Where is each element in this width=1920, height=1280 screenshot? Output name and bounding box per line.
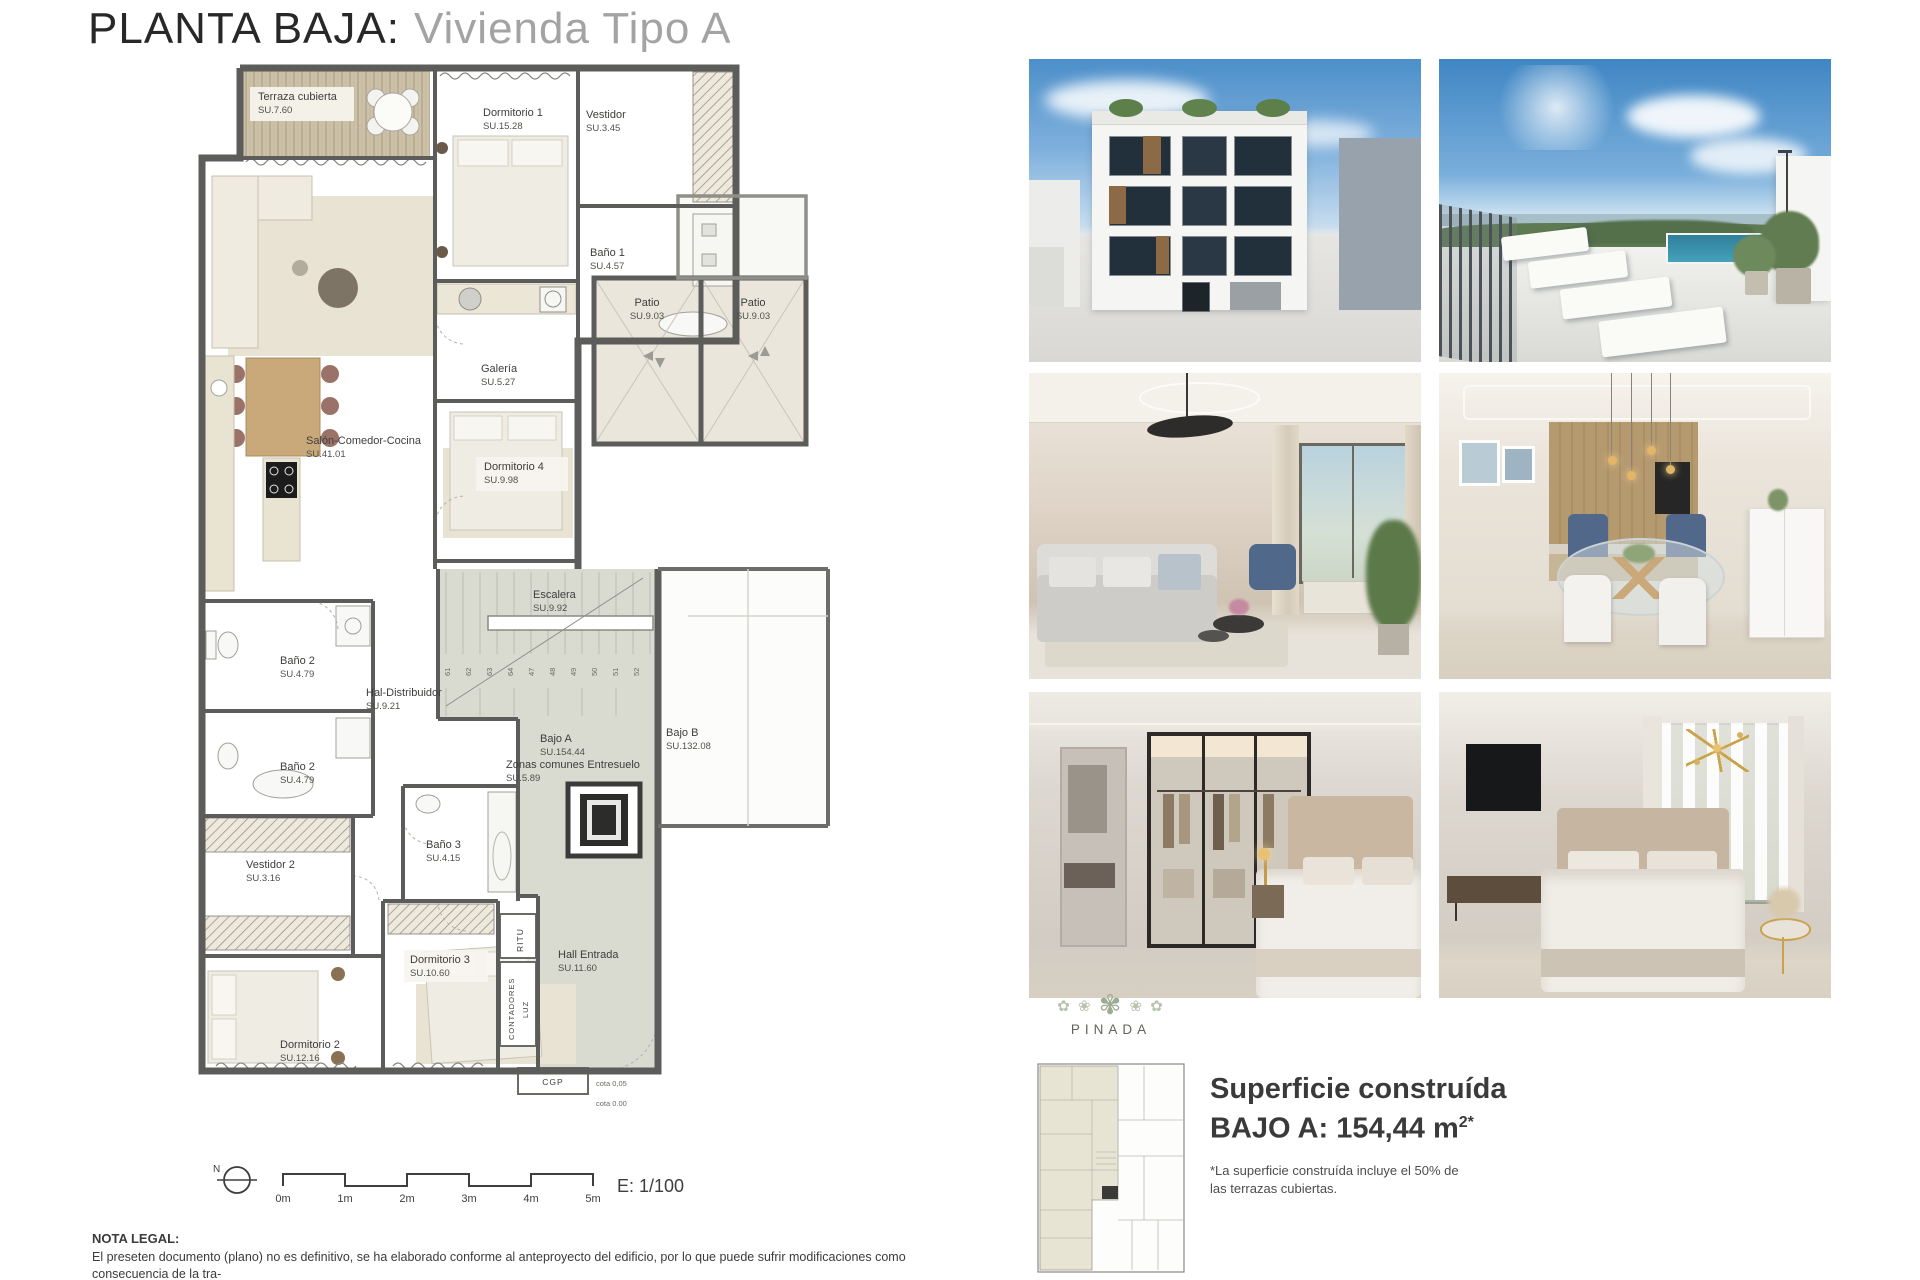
key-plan xyxy=(1032,1060,1190,1276)
ornament-center-icon: ✾ xyxy=(1099,990,1124,1020)
svg-text:SU.12.16: SU.12.16 xyxy=(280,1053,320,1064)
table-lamp-gold xyxy=(1264,857,1267,885)
wall-art xyxy=(1459,440,1500,486)
pendant-cord xyxy=(1651,373,1652,446)
label-salon: Salón-Comedor-CocinaSU.41.01 xyxy=(306,435,422,460)
glass-mullion xyxy=(1202,736,1205,944)
photo-bedroom xyxy=(1439,692,1831,998)
wall-art xyxy=(1502,446,1535,483)
svg-text:SU.15.28: SU.15.28 xyxy=(483,121,523,132)
label-galeria: GaleríaSU.5.27 xyxy=(481,363,518,388)
svg-text:Hal-Distribuidor: Hal-Distribuidor xyxy=(366,687,442,699)
svg-text:Hall Entrada: Hall Entrada xyxy=(558,949,619,961)
bed-throw xyxy=(1541,949,1745,977)
svg-text:Patio: Patio xyxy=(740,297,765,309)
stair-number: 61 xyxy=(443,668,452,676)
hanging-garment xyxy=(1213,794,1224,850)
sofa-cushion xyxy=(1049,557,1096,588)
svg-text:Bajo A: Bajo A xyxy=(540,733,572,745)
dining-chair-white xyxy=(1659,578,1706,645)
vanity-counter xyxy=(1064,863,1115,887)
side-table-leg xyxy=(1782,937,1784,974)
bajo-b-fill xyxy=(658,569,828,826)
window-wood-slat xyxy=(1109,186,1126,224)
roof-plant xyxy=(1182,99,1216,117)
roof-plant xyxy=(1109,99,1143,117)
svg-text:SU.5.89: SU.5.89 xyxy=(506,773,540,784)
ornament-left-icon: ✿ ❀ xyxy=(1057,998,1092,1015)
label-hal-distribuidor: Hal-DistribuidorSU.9.21 xyxy=(366,687,442,712)
planter-pot xyxy=(1745,271,1769,295)
svg-text:Salón-Comedor-Cocina: Salón-Comedor-Cocina xyxy=(306,435,422,447)
svg-text:Baño 1: Baño 1 xyxy=(590,247,625,259)
hanging-garment xyxy=(1229,794,1240,842)
dining-chair-white xyxy=(1564,575,1611,642)
pendant-bulb xyxy=(1627,471,1636,480)
svg-text:SU.3.45: SU.3.45 xyxy=(586,123,620,134)
svg-text:SU.4.15: SU.4.15 xyxy=(426,853,460,864)
svg-text:SU.5.27: SU.5.27 xyxy=(481,377,515,388)
pendant-bulb xyxy=(1608,456,1617,465)
hanging-garment xyxy=(1179,794,1190,844)
summary-line2: BAJO A: 154,44 m2* xyxy=(1210,1106,1630,1146)
photo-rooftop-solarium xyxy=(1439,59,1831,362)
bed-pillow xyxy=(1303,857,1354,885)
tv-screen xyxy=(1466,744,1540,811)
bed-pillow xyxy=(1362,857,1413,885)
svg-text:Zonas comunes Entresuelo: Zonas comunes Entresuelo xyxy=(506,759,640,771)
cloud xyxy=(1627,95,1760,137)
scale-bar: N 0m 1m 2m 3m 4m 5m E: 1/100 xyxy=(205,1146,725,1210)
svg-text:SU.9.92: SU.9.92 xyxy=(533,603,567,614)
label-bano2-upper: Baño 2SU.4.79 xyxy=(280,655,315,680)
window xyxy=(1234,236,1292,276)
stair-number: 63 xyxy=(485,668,494,676)
stair-number: 51 xyxy=(611,668,620,676)
sideboard-seam xyxy=(1784,508,1785,637)
brochure-page: PLANTA BAJA:Vivienda Tipo A xyxy=(0,0,1920,1280)
svg-text:SU.4.79: SU.4.79 xyxy=(280,775,314,786)
shelf-box xyxy=(1163,869,1194,898)
sideboard-white xyxy=(1749,508,1825,639)
vase-sprig xyxy=(1768,489,1788,510)
svg-text:SU.9.03: SU.9.03 xyxy=(630,311,664,322)
title-sub: Vivienda Tipo A xyxy=(414,4,732,53)
building-facade xyxy=(1092,111,1308,311)
summary-footnote: *La superficie construída incluye el 50%… xyxy=(1210,1162,1630,1198)
label-ritu: RITU xyxy=(515,928,525,952)
hanging-garment xyxy=(1163,794,1174,848)
stair-number: 62 xyxy=(464,668,473,676)
label-terraza: Terraza cubiertaSU.7.60 xyxy=(250,87,354,121)
scale-ratio: E: 1/100 xyxy=(617,1176,684,1196)
svg-text:Vestidor: Vestidor xyxy=(586,109,626,121)
stair-number: 49 xyxy=(569,668,578,676)
svg-text:SU.9.98: SU.9.98 xyxy=(484,475,518,486)
sofa-cushion xyxy=(1103,557,1150,588)
window xyxy=(1234,136,1292,176)
svg-text:5m: 5m xyxy=(585,1193,600,1205)
label-dorm1: Dormitorio 1SU.15.28 xyxy=(483,107,543,132)
elevator xyxy=(568,784,640,856)
svg-text:Baño 2: Baño 2 xyxy=(280,761,315,773)
plant xyxy=(1366,520,1421,630)
svg-text:SU.10.60: SU.10.60 xyxy=(410,968,450,979)
wardrobe xyxy=(693,72,733,202)
svg-text:SU.154.44: SU.154.44 xyxy=(540,747,585,758)
closet-light-strip xyxy=(1151,736,1308,757)
photo-dining-kitchen xyxy=(1439,373,1831,679)
window xyxy=(1109,136,1171,176)
svg-text:SU.9.03: SU.9.03 xyxy=(736,311,770,322)
curtain-panel xyxy=(1788,716,1804,912)
neighbor-building-right xyxy=(1339,138,1421,311)
label-vestidor2: Vestidor 2SU.3.16 xyxy=(246,859,295,884)
stair-number: 52 xyxy=(632,668,641,676)
label-vestidor: VestidorSU.3.45 xyxy=(586,109,626,134)
plant-pot xyxy=(1378,624,1409,655)
ceiling-cove xyxy=(1463,385,1812,420)
window xyxy=(1182,236,1227,276)
stair-number: 47 xyxy=(527,668,536,676)
railing xyxy=(1439,204,1517,362)
label-dorm3: Dormitorio 3SU.10.60 xyxy=(404,950,488,982)
svg-text:Terraza cubierta: Terraza cubierta xyxy=(258,91,338,103)
north-label: N xyxy=(213,1164,220,1175)
svg-text:SU.41.01: SU.41.01 xyxy=(306,449,346,460)
svg-text:1m: 1m xyxy=(337,1193,352,1205)
label-luz: LUZ xyxy=(521,1001,530,1018)
legal-note: NOTA LEGAL: El preseten documento (plano… xyxy=(92,1230,972,1280)
shower-head xyxy=(1778,150,1792,153)
nightstand xyxy=(1252,885,1283,919)
svg-text:Patio: Patio xyxy=(634,297,659,309)
svg-text:SU.132.08: SU.132.08 xyxy=(666,741,711,752)
svg-text:3m: 3m xyxy=(461,1193,476,1205)
entry-door xyxy=(1182,282,1210,312)
chandelier-bulb xyxy=(1737,732,1743,738)
pendant-cord xyxy=(1670,373,1671,465)
label-cota-2: cota 0.00 xyxy=(596,1099,627,1108)
svg-text:Vestidor 2: Vestidor 2 xyxy=(246,859,295,871)
brand-block: ✿ ❀ ✾ ❀ ✿ PINADA xyxy=(1022,990,1200,1037)
floor-plan: 61626364474849505152 xyxy=(188,56,836,1122)
surface-summary: Superficie construída BAJO A: 154,44 m2*… xyxy=(1210,1072,1630,1198)
svg-text:SU.4.79: SU.4.79 xyxy=(280,669,314,680)
svg-text:SU.9.21: SU.9.21 xyxy=(366,701,400,712)
ornament-right-icon: ❀ ✿ xyxy=(1129,998,1164,1015)
photo-bedroom-suite xyxy=(1029,692,1421,998)
svg-text:SU.4.57: SU.4.57 xyxy=(590,261,624,272)
legal-heading: NOTA LEGAL: xyxy=(92,1230,972,1247)
page-title: PLANTA BAJA:Vivienda Tipo A xyxy=(88,4,732,54)
roof-plant xyxy=(1256,99,1290,117)
svg-text:Baño 3: Baño 3 xyxy=(426,839,461,851)
ceiling-cove-light xyxy=(1139,382,1261,414)
hanging-garment xyxy=(1263,794,1274,848)
label-contadores: CONTADORES xyxy=(507,978,516,1040)
svg-text:SU.3.16: SU.3.16 xyxy=(246,873,280,884)
window-wood-slat xyxy=(1156,236,1169,274)
sun-glare xyxy=(1478,65,1635,150)
window xyxy=(1234,186,1292,226)
svg-text:Galería: Galería xyxy=(481,363,518,375)
side-table-gold xyxy=(1760,918,1811,940)
pampas-decor xyxy=(1768,888,1799,919)
legal-line: El preseten documento (plano) no es defi… xyxy=(92,1249,972,1280)
label-bano3: Baño 3SU.4.15 xyxy=(426,839,461,864)
console-leg xyxy=(1455,903,1457,921)
svg-text:Baño 2: Baño 2 xyxy=(280,655,315,667)
vanity-mirror xyxy=(1068,765,1107,832)
flowers xyxy=(1229,599,1249,614)
svg-text:Escalera: Escalera xyxy=(533,589,577,601)
window-wood-slat xyxy=(1143,136,1160,174)
photo-building-facade xyxy=(1029,59,1421,362)
shelf-box xyxy=(1213,869,1244,898)
title-main: PLANTA BAJA: xyxy=(88,4,400,53)
svg-text:Dormitorio 3: Dormitorio 3 xyxy=(410,954,470,966)
window-mullion xyxy=(1352,443,1354,578)
armchair-blue xyxy=(1249,544,1296,590)
window xyxy=(1182,186,1227,226)
svg-text:0m: 0m xyxy=(275,1193,290,1205)
window xyxy=(1182,136,1227,176)
label-dorm4: Dormitorio 4SU.9.98 xyxy=(476,457,568,491)
pendant-lamp xyxy=(1186,373,1188,422)
svg-text:2m: 2m xyxy=(399,1193,414,1205)
stair-number: 64 xyxy=(506,668,515,676)
label-cgp: CGP xyxy=(542,1077,563,1087)
svg-text:SU.11.60: SU.11.60 xyxy=(558,963,597,974)
hanging-rod xyxy=(1157,790,1301,792)
sofa-throw xyxy=(1158,554,1201,591)
bed-throw xyxy=(1256,949,1421,977)
svg-text:4m: 4m xyxy=(523,1193,538,1205)
pendant-cord xyxy=(1631,373,1632,471)
summary-line1: Superficie construída xyxy=(1210,1072,1630,1106)
planter-pot xyxy=(1776,268,1811,304)
svg-text:Bajo B: Bajo B xyxy=(666,727,698,739)
stair-number: 50 xyxy=(590,668,599,676)
label-cota-1: cota 0,05 xyxy=(596,1079,627,1088)
brand-name: PINADA xyxy=(1022,1022,1200,1037)
stair-number: 48 xyxy=(548,668,557,676)
garage-opening xyxy=(1230,282,1282,310)
scale-ticks: 0m 1m 2m 3m 4m 5m xyxy=(275,1193,600,1205)
label-bano1: Baño 1SU.4.57 xyxy=(590,247,625,272)
svg-text:Dormitorio 1: Dormitorio 1 xyxy=(483,107,543,119)
pendant-cord xyxy=(1611,373,1612,456)
brand-ornament-icon: ✿ ❀ ✾ ❀ ✿ xyxy=(1022,990,1200,1022)
key-plan-elevator xyxy=(1102,1186,1118,1199)
ceiling-cove xyxy=(1029,723,1421,725)
neighbor-building xyxy=(1029,247,1064,308)
centerpiece xyxy=(1623,544,1654,562)
svg-text:SU.7.60: SU.7.60 xyxy=(258,105,292,116)
scale-bar-line xyxy=(283,1174,593,1186)
photo-living-room xyxy=(1029,373,1421,679)
svg-text:Dormitorio 2: Dormitorio 2 xyxy=(280,1039,340,1051)
svg-text:Dormitorio 4: Dormitorio 4 xyxy=(484,461,544,473)
